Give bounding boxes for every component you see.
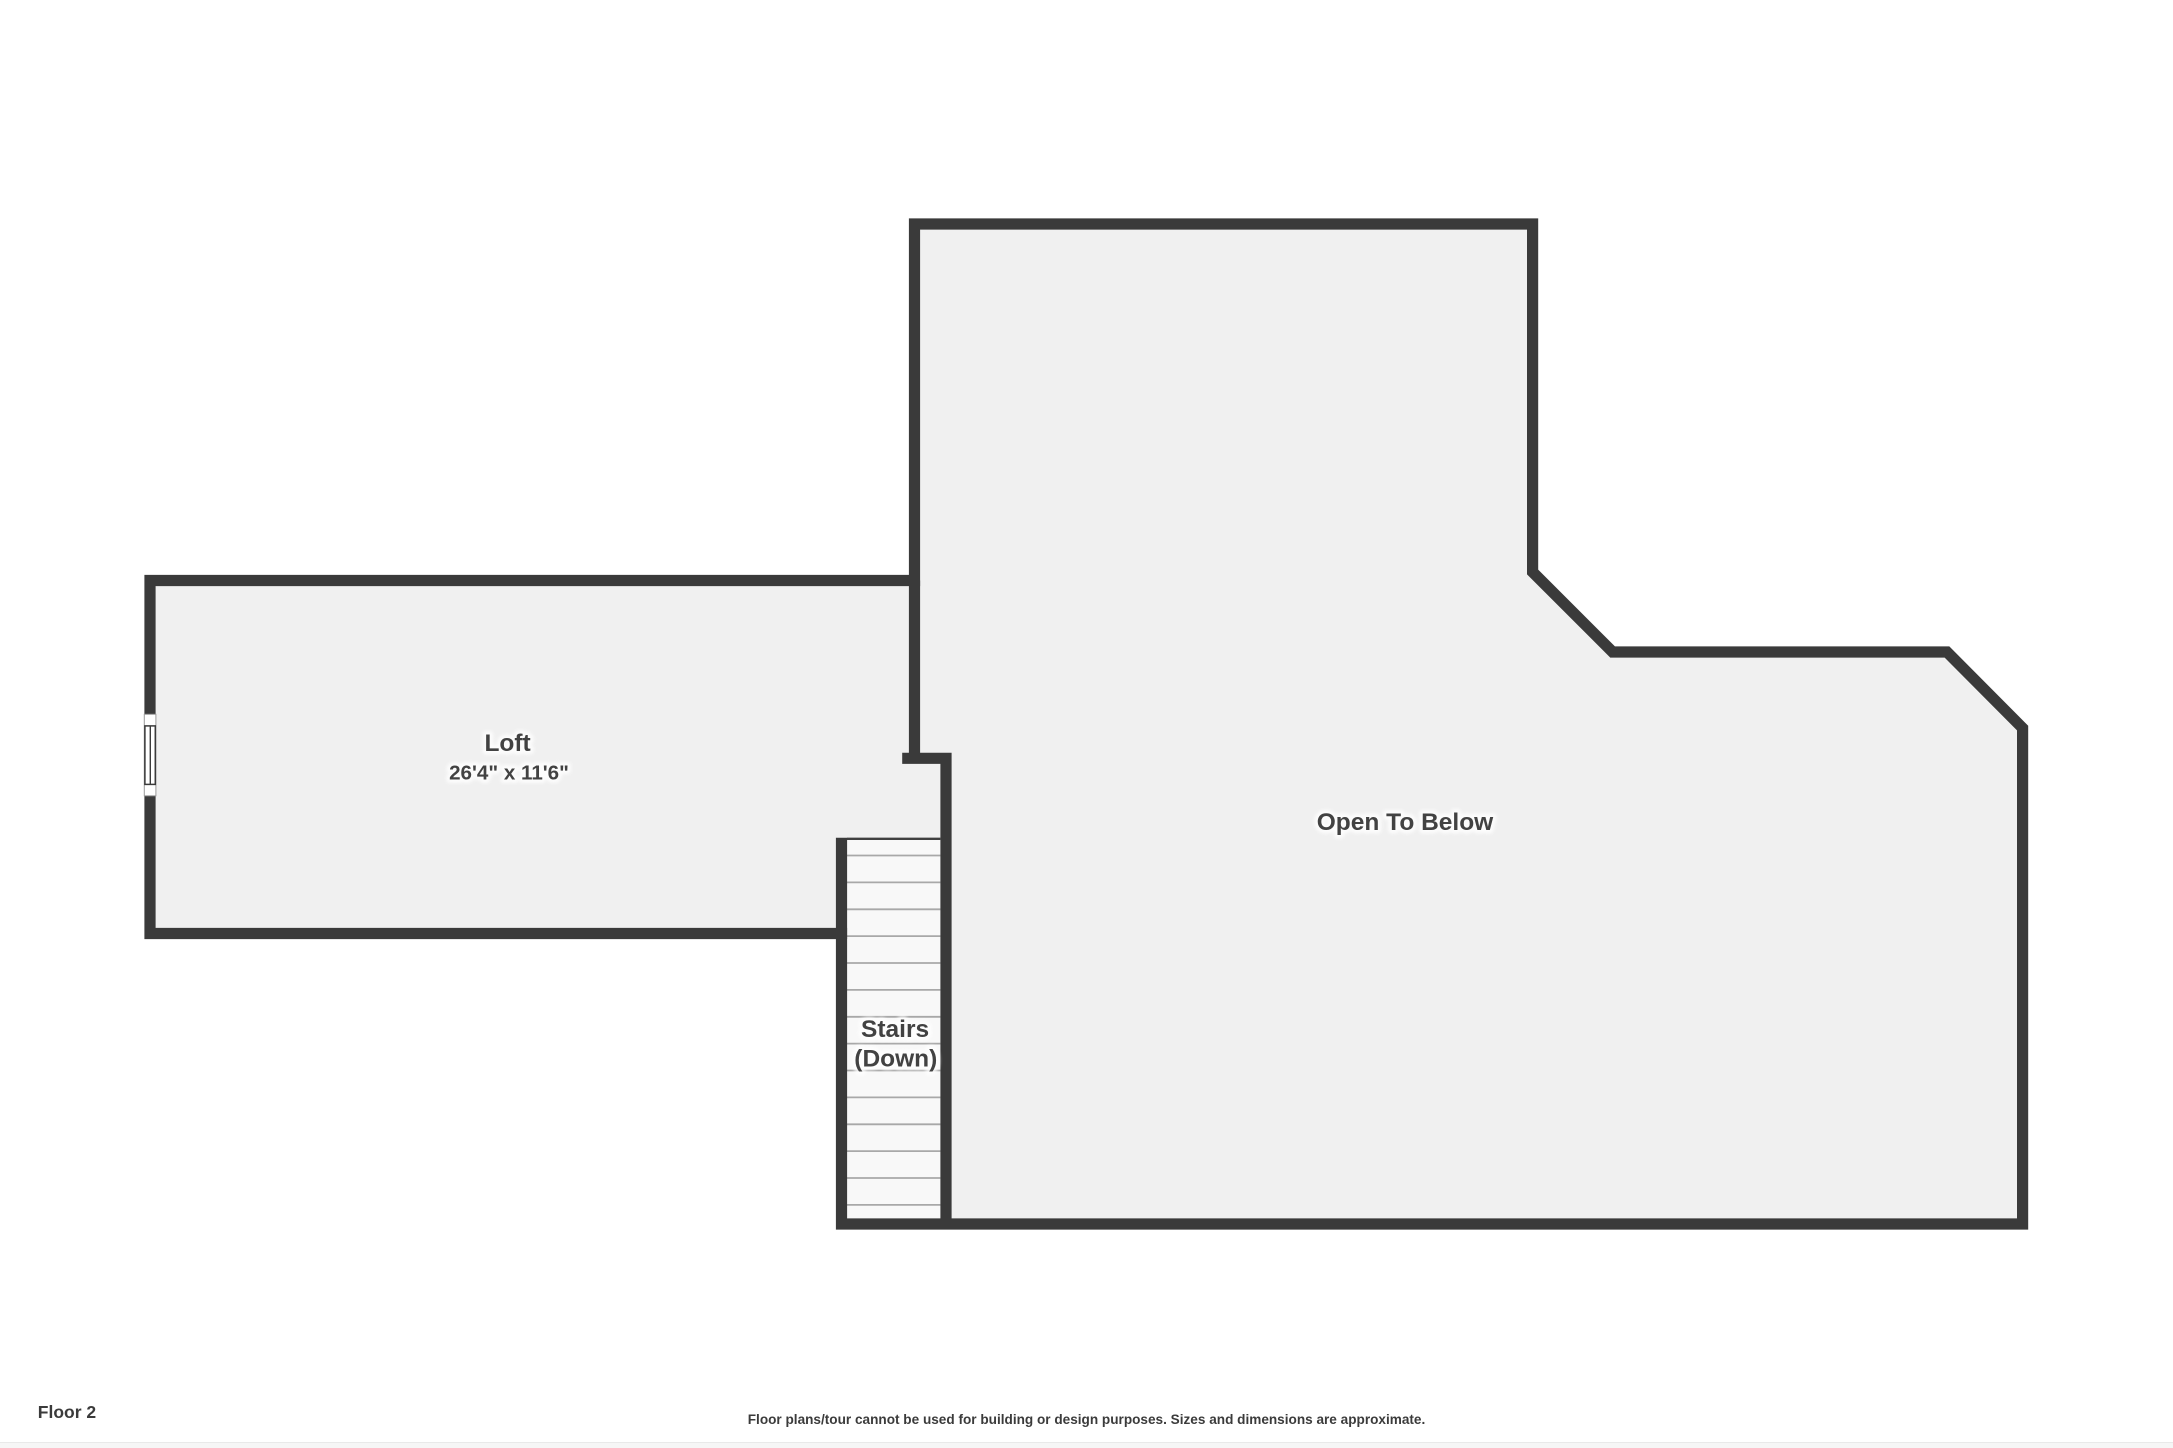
svg-text:(Down): (Down): [854, 1046, 937, 1073]
svg-text:Loft: Loft: [484, 730, 530, 757]
svg-text:Stairs: Stairs: [861, 1016, 929, 1043]
svg-text:Floor plans/tour cannot be use: Floor plans/tour cannot be used for buil…: [748, 1412, 1426, 1427]
svg-text:Floor 2: Floor 2: [38, 1402, 97, 1422]
svg-text:26'4" x 11'6": 26'4" x 11'6": [449, 762, 569, 785]
svg-text:Open To Below: Open To Below: [1317, 809, 1494, 836]
